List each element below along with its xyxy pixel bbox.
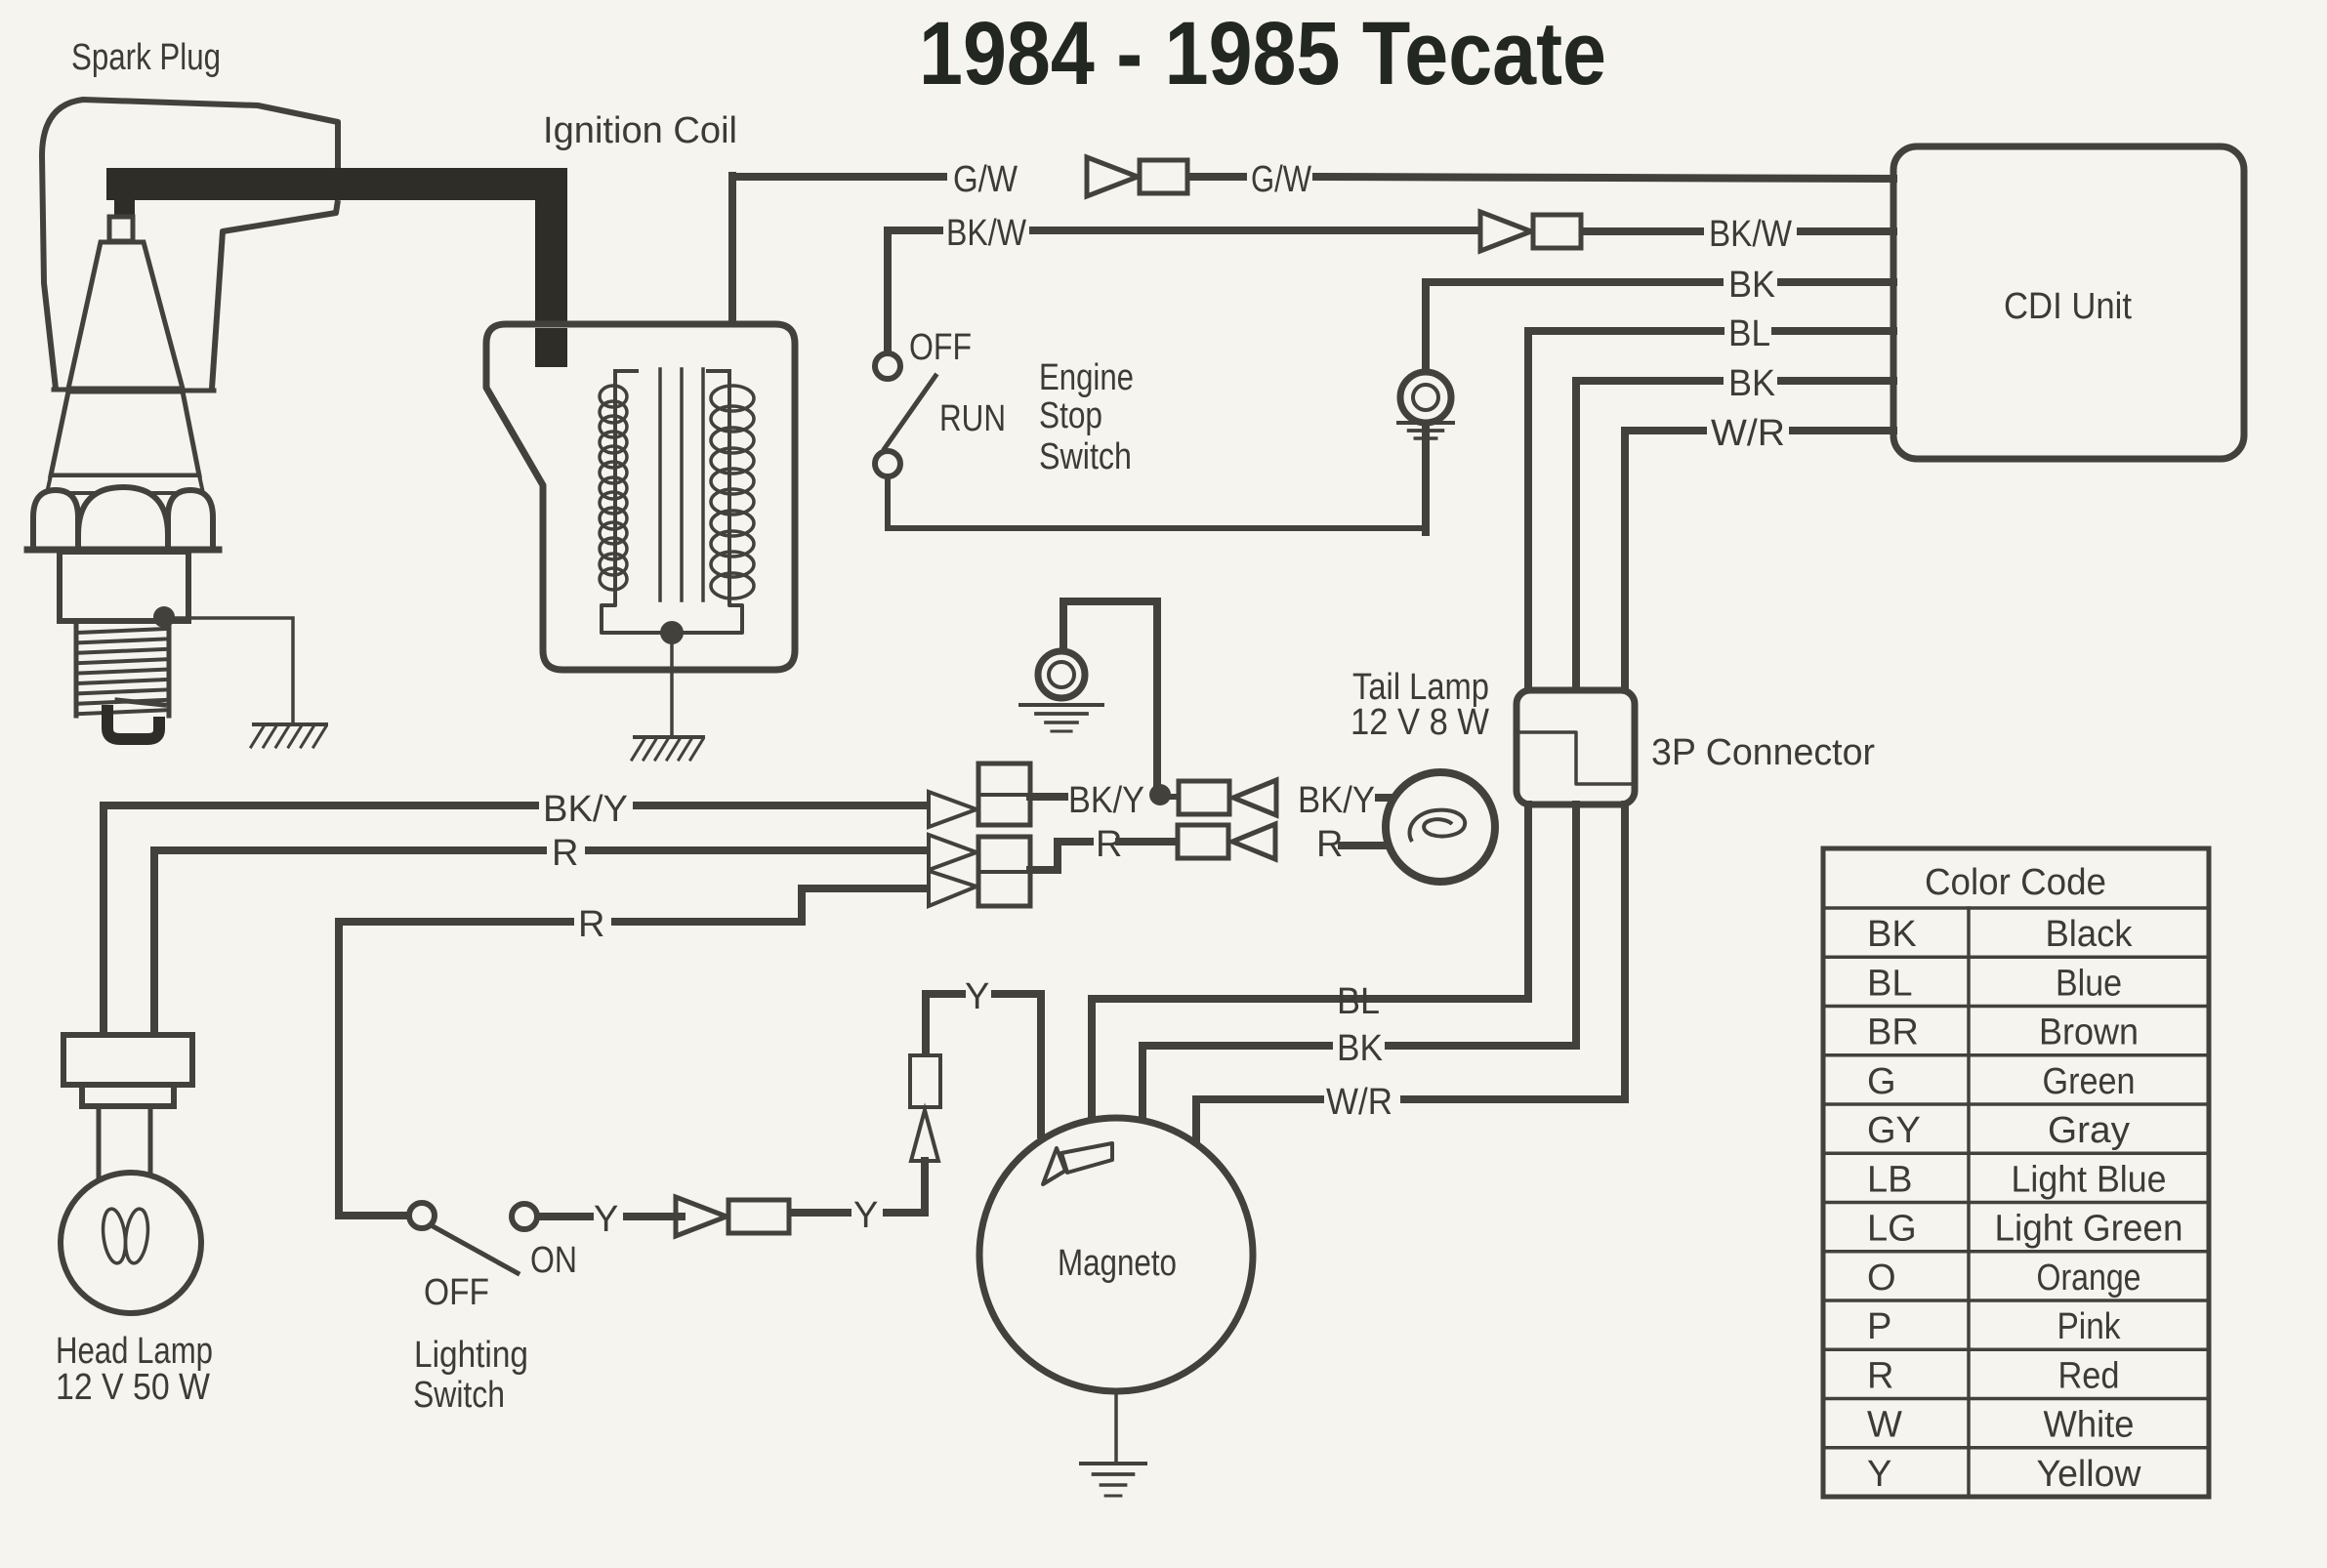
svg-text:LG: LG [1867, 1209, 1917, 1250]
svg-text:Spark Plug: Spark Plug [71, 37, 221, 78]
svg-text:O: O [1867, 1258, 1896, 1299]
svg-text:GY: GY [1867, 1110, 1921, 1151]
svg-text:1984 - 1985 Tecate: 1984 - 1985 Tecate [919, 4, 1606, 103]
svg-text:3P Connector: 3P Connector [1651, 732, 1875, 773]
svg-text:P: P [1867, 1306, 1891, 1347]
svg-text:R: R [1867, 1355, 1893, 1396]
svg-text:BK/W: BK/W [946, 213, 1026, 254]
svg-text:Ignition Coil: Ignition Coil [543, 110, 737, 151]
svg-text:BK: BK [1728, 363, 1775, 404]
svg-text:Y: Y [965, 976, 989, 1017]
svg-text:W/R: W/R [1326, 1082, 1392, 1123]
svg-text:Light Green: Light Green [1995, 1209, 2183, 1250]
svg-text:BL: BL [1867, 963, 1912, 1004]
svg-text:Magneto: Magneto [1058, 1243, 1177, 1284]
svg-text:BR: BR [1867, 1012, 1919, 1053]
svg-text:12 V 8 W: 12 V 8 W [1350, 702, 1489, 743]
svg-text:Y: Y [1867, 1454, 1891, 1495]
svg-text:CDI Unit: CDI Unit [2004, 286, 2132, 327]
svg-text:Switch: Switch [413, 1375, 505, 1416]
svg-text:12 V 50 W: 12 V 50 W [56, 1367, 210, 1408]
svg-text:Y: Y [594, 1199, 618, 1240]
svg-text:LB: LB [1867, 1159, 1912, 1200]
svg-text:Yellow: Yellow [2037, 1454, 2142, 1495]
svg-text:BL: BL [1728, 313, 1770, 354]
svg-text:BK: BK [1337, 1028, 1383, 1069]
svg-text:Switch: Switch [1039, 436, 1132, 477]
svg-text:Brown: Brown [2039, 1012, 2139, 1053]
svg-text:G/W: G/W [1251, 159, 1311, 200]
svg-text:Red: Red [2058, 1355, 2120, 1396]
svg-text:Green: Green [2043, 1061, 2136, 1102]
svg-text:Color Code: Color Code [1925, 862, 2106, 903]
svg-text:Head Lamp: Head Lamp [56, 1331, 213, 1372]
svg-text:R: R [552, 833, 578, 874]
svg-text:Stop: Stop [1039, 395, 1102, 436]
svg-text:Black: Black [2046, 914, 2134, 955]
svg-text:R: R [578, 904, 604, 945]
svg-text:G: G [1867, 1061, 1896, 1102]
svg-text:BK: BK [1728, 265, 1775, 306]
svg-text:W: W [1867, 1405, 1902, 1446]
svg-text:OFF: OFF [424, 1272, 489, 1313]
svg-text:BK/Y: BK/Y [1298, 780, 1375, 821]
svg-text:BK/Y: BK/Y [1068, 780, 1144, 821]
svg-text:White: White [2044, 1405, 2135, 1446]
svg-text:G/W: G/W [953, 159, 1018, 200]
svg-text:Light Blue: Light Blue [2012, 1159, 2167, 1200]
svg-text:BK: BK [1867, 914, 1917, 955]
svg-text:BL: BL [1337, 981, 1380, 1022]
svg-text:Blue: Blue [2056, 963, 2122, 1004]
svg-text:BK/Y: BK/Y [543, 789, 628, 830]
svg-text:ON: ON [530, 1240, 577, 1281]
svg-text:Engine: Engine [1039, 357, 1134, 398]
svg-text:OFF: OFF [909, 327, 972, 368]
svg-text:W/R: W/R [1711, 413, 1785, 454]
svg-text:BK/W: BK/W [1709, 214, 1792, 255]
svg-text:Pink: Pink [2057, 1306, 2122, 1347]
svg-text:RUN: RUN [939, 398, 1006, 439]
svg-text:Y: Y [853, 1195, 878, 1236]
svg-text:Lighting: Lighting [414, 1335, 528, 1376]
svg-text:Orange: Orange [2037, 1258, 2141, 1299]
svg-text:Gray: Gray [2048, 1110, 2130, 1151]
